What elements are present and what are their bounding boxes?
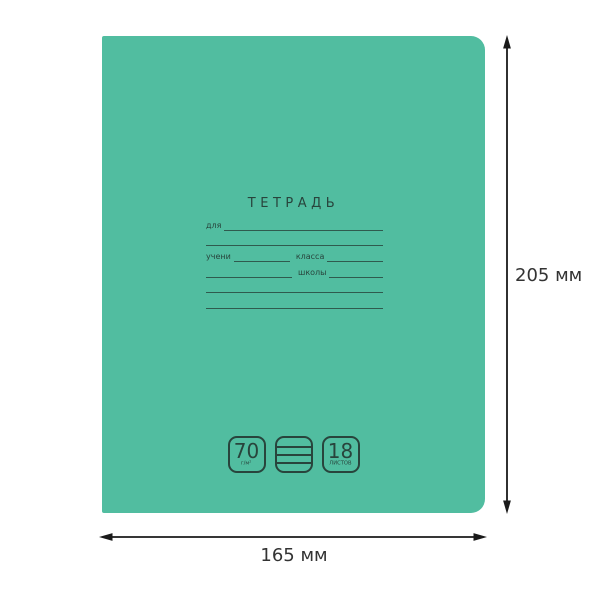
- product-dimension-diagram: ТЕТРАДЬ для учени класса школы: [0, 0, 600, 600]
- form-blank-line: [224, 216, 383, 231]
- height-arrowhead-bottom: [503, 501, 511, 515]
- form-label-for: для: [206, 221, 224, 231]
- form-row-student-class: учени класса: [206, 248, 383, 262]
- sheet-count-badge: 18 ЛИСТОВ: [322, 436, 360, 473]
- form-row-for: для: [206, 217, 383, 231]
- spec-badges: 70 г/м² 18 ЛИСТОВ: [228, 436, 360, 473]
- form-blank-line: [206, 278, 383, 293]
- form-blank-line: [206, 294, 383, 309]
- paper-density-badge: 70 г/м²: [228, 436, 266, 473]
- width-dimension-label: 165 мм: [254, 545, 334, 566]
- paper-density-unit: г/м²: [241, 461, 251, 464]
- form-row-blank: [206, 295, 383, 309]
- form-row-school: школы: [206, 264, 383, 278]
- form-row-blank: [206, 279, 383, 293]
- width-arrowhead-right: [474, 533, 488, 541]
- form-row-blank: [206, 232, 383, 246]
- form-blank-line: [329, 263, 383, 278]
- height-dimension-label: 205 мм: [515, 265, 582, 286]
- form-label-school: школы: [298, 268, 329, 278]
- cover-title: ТЕТРАДЬ: [102, 196, 485, 211]
- ruled-lines-icon: [275, 436, 313, 473]
- sheet-count-unit: ЛИСТОВ: [329, 461, 351, 464]
- form-blank-line: [234, 247, 290, 262]
- width-arrowhead-left: [99, 533, 113, 541]
- form-blank-line: [327, 247, 383, 262]
- form-blank-line: [206, 263, 292, 278]
- form-label-class: класса: [296, 252, 328, 262]
- notebook-cover: ТЕТРАДЬ для учени класса школы: [102, 36, 485, 513]
- height-arrowhead-top: [503, 35, 511, 49]
- form-label-student: учени: [206, 252, 234, 262]
- form-blank-line: [206, 231, 383, 246]
- paper-density-value: 70: [234, 442, 259, 461]
- sheet-count-value: 18: [328, 442, 353, 461]
